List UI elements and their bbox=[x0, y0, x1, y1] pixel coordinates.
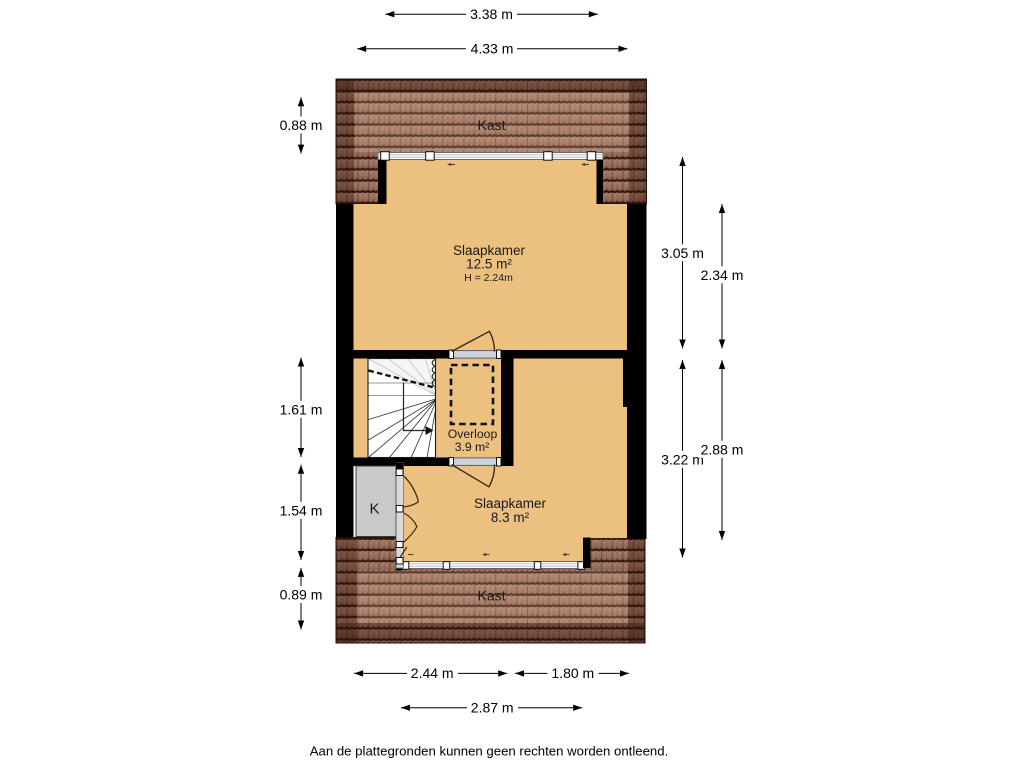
svg-text:1.61 m: 1.61 m bbox=[280, 402, 323, 418]
svg-text:1.54 m: 1.54 m bbox=[280, 503, 323, 519]
svg-text:Kast: Kast bbox=[477, 117, 505, 133]
svg-text:3.22 m: 3.22 m bbox=[661, 452, 704, 468]
svg-text:Aan de plattegronden kunnen ge: Aan de plattegronden kunnen geen rechten… bbox=[310, 744, 669, 759]
svg-text:3.9 m²: 3.9 m² bbox=[455, 440, 490, 454]
svg-text:H = 2.24m: H = 2.24m bbox=[464, 272, 513, 284]
svg-text:12.5 m²: 12.5 m² bbox=[466, 256, 512, 271]
svg-text:Kast: Kast bbox=[477, 588, 505, 604]
svg-text:3.05 m: 3.05 m bbox=[661, 245, 704, 261]
svg-text:2.88 m: 2.88 m bbox=[701, 442, 744, 458]
svg-text:K: K bbox=[369, 501, 379, 518]
svg-text:2.87 m: 2.87 m bbox=[471, 700, 514, 716]
svg-text:0.89 m: 0.89 m bbox=[280, 587, 323, 603]
svg-text:3.38 m: 3.38 m bbox=[470, 6, 513, 22]
svg-text:8.3 m²: 8.3 m² bbox=[491, 510, 530, 525]
svg-text:2.34 m: 2.34 m bbox=[701, 267, 744, 283]
svg-text:1.80 m: 1.80 m bbox=[551, 665, 594, 681]
svg-text:Slaapkamer: Slaapkamer bbox=[474, 496, 547, 511]
svg-text:2.44 m: 2.44 m bbox=[411, 665, 454, 681]
svg-text:4.33 m: 4.33 m bbox=[471, 41, 514, 57]
svg-text:0.88 m: 0.88 m bbox=[280, 117, 323, 133]
